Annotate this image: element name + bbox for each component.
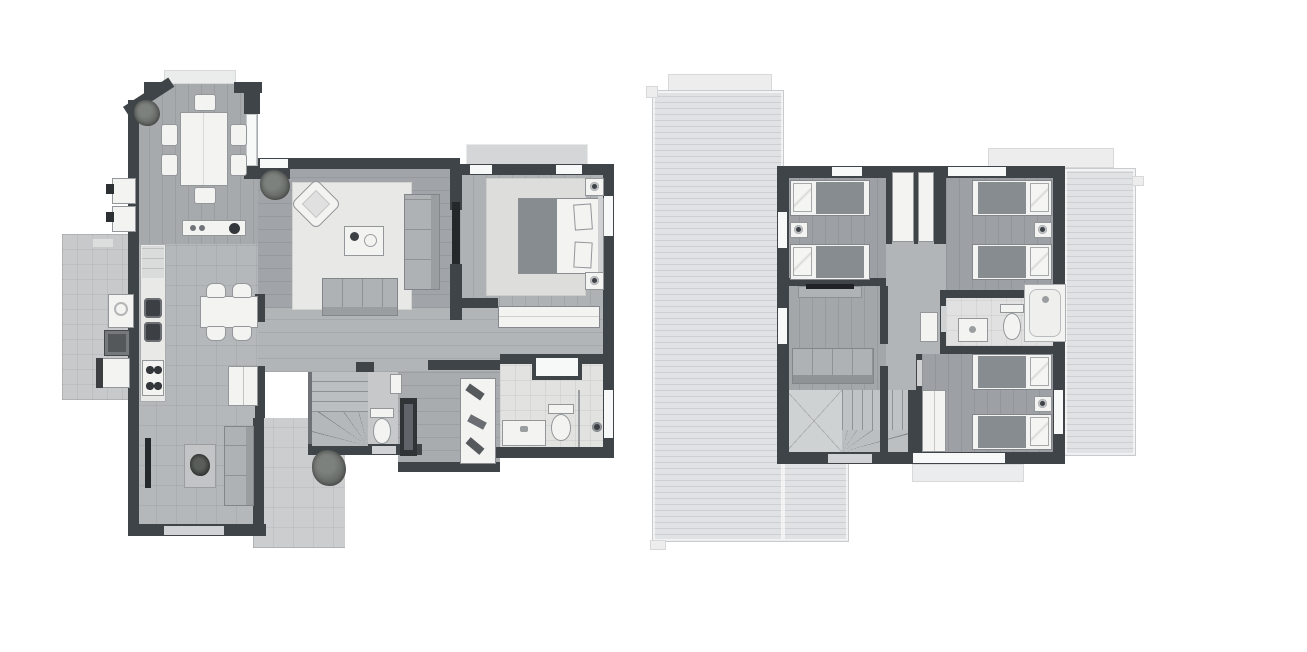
blanket [978,182,1026,214]
gutter-nub [1132,176,1144,186]
pillow [1030,247,1049,276]
pillow [1030,357,1049,386]
lounge-tv [806,284,854,289]
wall-lounge-right [880,366,888,452]
twin-bed [972,244,1052,280]
upper-stair-treads [842,390,910,430]
blanket [816,182,864,214]
blanket [978,416,1026,448]
table-lamp [1038,225,1047,234]
bathtub-drain [1042,296,1049,303]
twin-bed [790,244,870,280]
bedroom4-door [917,360,922,386]
roof-plane-left-ext [783,456,849,542]
twin-bed [972,180,1052,216]
closet [892,172,914,242]
window [778,212,787,248]
floorplan-canvas [0,0,1307,652]
blanket [816,246,864,278]
balcony-ledge [912,464,1024,482]
wall-bedroom3-left [934,168,946,244]
bath-door [941,306,946,332]
pillow [793,247,812,276]
toilet-bowl [1003,313,1021,340]
window [778,308,787,344]
wall-lounge-right [880,286,888,344]
pillow [793,183,812,212]
table-lamp [1038,399,1047,408]
window [1054,390,1063,434]
window [948,167,1006,176]
gutter-nub [650,540,666,550]
blanket [978,356,1026,388]
door-threshold [828,454,872,463]
vanity-faucet [969,326,976,333]
twin-bed [790,180,870,216]
stairwell-void [786,390,842,452]
window [832,167,862,176]
lounge-sofa-back [793,375,873,383]
gutter-nub [646,86,658,98]
wall-stairs-right [908,390,916,452]
pillow [1030,417,1049,446]
blanket [978,246,1026,278]
linen-closet [920,312,938,342]
roof-plane-left [652,90,784,542]
toilet-tank [1000,304,1024,313]
upper-stair-winders [842,430,910,452]
closet [922,390,946,452]
closet [918,172,934,242]
roof-plane-right [1064,168,1136,456]
ridge-cap [988,148,1114,168]
table-lamp [794,225,803,234]
twin-bed [972,414,1052,450]
wall-bath-bottom [940,346,1054,354]
twin-bed [972,354,1052,390]
pillow [1030,183,1049,212]
upper-floor-plan [0,0,1307,652]
window [913,453,1005,463]
